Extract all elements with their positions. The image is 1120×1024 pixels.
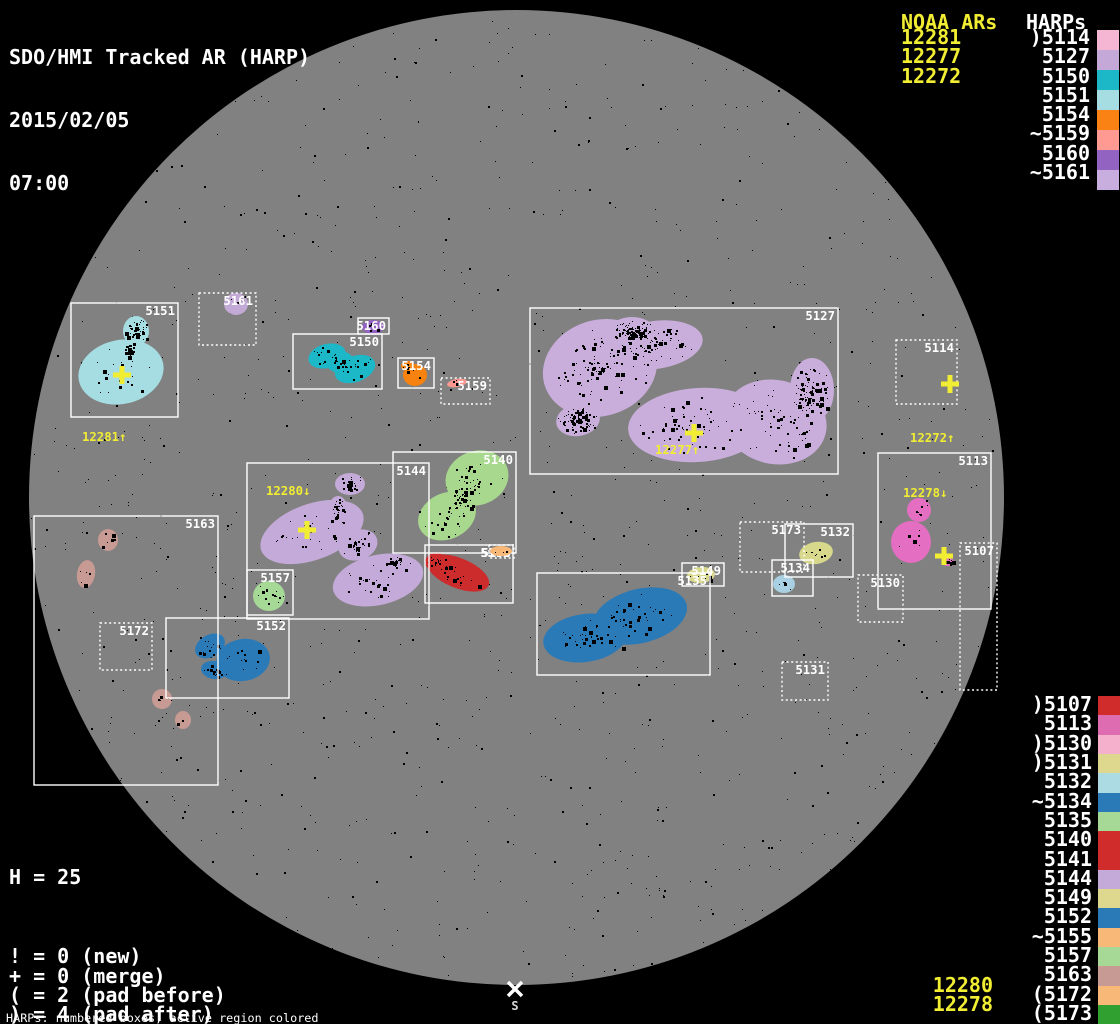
harp-color-swatch xyxy=(1098,986,1120,1005)
app-title: SDO/HMI Tracked AR (HARP) xyxy=(9,47,310,68)
header: SDO/HMI Tracked AR (HARP) 2015/02/05 07:… xyxy=(9,5,310,236)
harp-color-swatch xyxy=(1097,50,1119,70)
harp-box-label-5134: 5134 xyxy=(780,561,810,575)
harp-color-swatch xyxy=(1097,30,1119,50)
harp-color-swatch xyxy=(1098,908,1120,927)
harp-box-label-5113: 5113 xyxy=(958,454,988,468)
harp-color-swatch xyxy=(1097,170,1119,190)
footer: HARPs: numbered boxes; active region col… xyxy=(6,991,418,1024)
harp-list-bottom: )51075113)5130)51315132~5134513551405141… xyxy=(1005,695,1092,1023)
footer-line-1: HARPs: numbered boxes; active region col… xyxy=(6,1013,418,1024)
harp-color-swatch xyxy=(1098,831,1120,850)
ar-blob-5150 xyxy=(326,351,354,373)
harp-box-label-5160: 5160 xyxy=(356,319,386,333)
harp-box-label-5130: 5130 xyxy=(870,576,900,590)
harp-box-label-5154: 5154 xyxy=(401,359,431,373)
noaa-ar-item: 12278 xyxy=(913,995,993,1014)
noaa-disk-label-12277: 12277↑ xyxy=(655,443,699,457)
harp-color-swatches-top xyxy=(1097,30,1119,190)
harp-color-swatch xyxy=(1098,773,1120,792)
harp-box-label-5172: 5172 xyxy=(119,624,149,638)
harp-color-swatch xyxy=(1098,812,1120,831)
harp-box-label-5151: 5151 xyxy=(145,304,175,318)
noaa-disk-label-12278: 12278↓ xyxy=(903,486,947,500)
harp-box-label-5140: 5140 xyxy=(483,453,513,467)
harp-box-label-5157: 5157 xyxy=(260,571,290,585)
harp-box-label-5135: 5135 xyxy=(677,574,707,588)
harp-box-label-5114: 5114 xyxy=(924,341,954,355)
observation-date: 2015/02/05 xyxy=(9,110,310,131)
harp-box-label-5150: 5150 xyxy=(349,335,379,349)
harp-box-label-5127: 5127 xyxy=(805,309,835,323)
harp-list-top: )51145127515051515154~51595160~5161 xyxy=(1005,28,1090,182)
observation-time: 07:00 xyxy=(9,173,310,194)
harp-item: (5173 xyxy=(1005,1004,1092,1023)
harp-box-label-5173: 5173 xyxy=(771,523,801,537)
harp-box-label-5161: 5161 xyxy=(223,294,253,308)
harp-color-swatch xyxy=(1098,793,1120,812)
ar-blob-5155 xyxy=(490,546,512,556)
harp-item: ~5161 xyxy=(1005,163,1090,182)
harp-color-swatch xyxy=(1097,70,1119,90)
harp-count: H = 25 xyxy=(9,868,238,887)
harp-color-swatch xyxy=(1098,966,1120,985)
harp-color-swatch xyxy=(1098,715,1120,734)
harp-color-swatch xyxy=(1098,947,1120,966)
harp-color-swatch xyxy=(1097,110,1119,130)
noaa-disk-label-12280: 12280↓ xyxy=(266,484,310,498)
harp-box-label-5159: 5159 xyxy=(457,379,487,393)
harp-color-swatch xyxy=(1098,889,1120,908)
harp-box-label-5132: 5132 xyxy=(820,525,850,539)
noaa-disk-label-12281: 12281↑ xyxy=(82,430,126,444)
harp-color-swatch xyxy=(1098,928,1120,947)
ar-blob-5157 xyxy=(253,581,285,611)
harp-color-swatch xyxy=(1098,735,1120,754)
noaa-disk-label-12272: 12272↑ xyxy=(910,431,954,445)
harp-box-label-5144: 5144 xyxy=(396,464,426,478)
noaa-ar-list-bottom: 1228012278 xyxy=(913,976,993,1015)
harp-box-label-5107: 5107 xyxy=(964,544,994,558)
harp-visualization: 5151516151605150515451595127511451135107… xyxy=(0,0,1120,1024)
noaa-ar-item: 12272 xyxy=(901,67,961,86)
harp-box-label-5163: 5163 xyxy=(185,517,215,531)
south-pole-label: S xyxy=(511,999,518,1013)
harp-box-label-5152: 5152 xyxy=(256,619,286,633)
harp-color-swatch xyxy=(1098,870,1120,889)
harp-color-swatch xyxy=(1098,1005,1120,1024)
harp-box-label-5131: 5131 xyxy=(795,663,825,677)
harp-color-swatch xyxy=(1097,90,1119,110)
harp-color-swatch xyxy=(1097,150,1119,170)
harp-color-swatch xyxy=(1098,696,1120,715)
noaa-ar-list-top: 122811227712272 xyxy=(901,28,961,86)
ar-blob-5113 xyxy=(891,521,931,563)
harp-color-swatch xyxy=(1097,130,1119,150)
harp-color-swatches-bottom xyxy=(1098,696,1120,1024)
harp-color-swatch xyxy=(1098,851,1120,870)
harp-color-swatch xyxy=(1098,754,1120,773)
